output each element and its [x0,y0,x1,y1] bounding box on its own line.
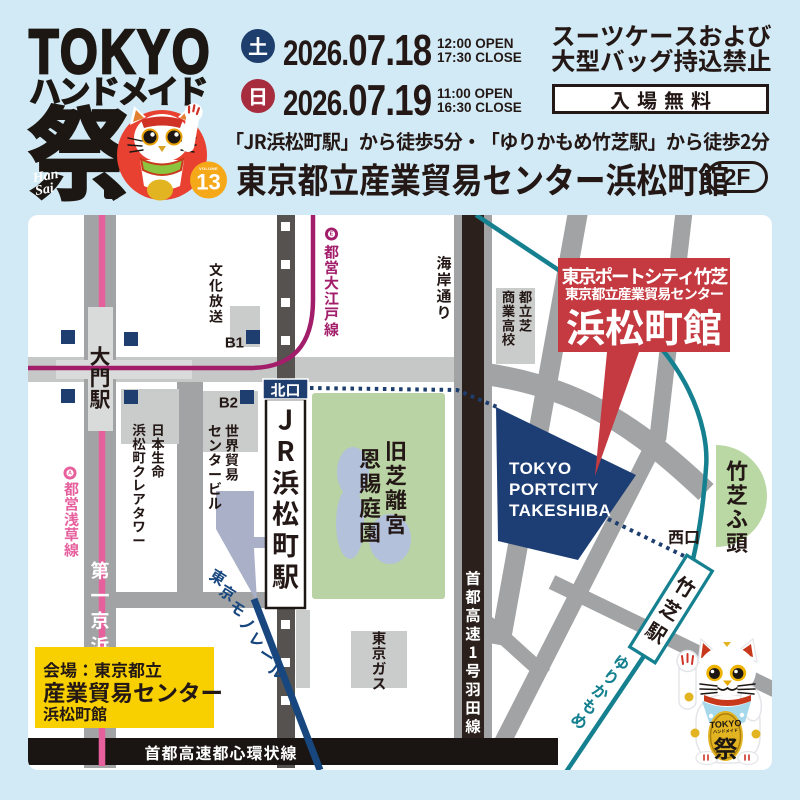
svg-text:命: 命 [151,460,165,480]
svg-text:校: 校 [502,329,516,349]
svg-text:浜松町館: 浜松町館 [566,298,722,354]
svg-text:送: 送 [209,307,223,327]
svg-text:E: E [330,232,334,238]
svg-text:13: 13 [196,170,220,195]
svg-text:B1: B1 [225,335,244,352]
svg-text:頭: 頭 [726,526,748,558]
svg-text:線: 線 [465,715,481,737]
svg-text:易: 易 [225,465,239,485]
svg-text:園: 園 [359,516,381,548]
svg-text:TOKYO: TOKYO [509,459,572,478]
svg-text:り: り [436,302,451,323]
svg-text:浜松町館: 浜松町館 [43,701,107,725]
svg-text:芝: 芝 [519,314,533,334]
svg-text:一: 一 [90,582,109,609]
svg-text:線: 線 [324,319,339,340]
svg-text:ス: ス [372,673,387,694]
svg-text:B2: B2 [219,395,238,412]
svg-text:宮: 宮 [385,508,407,540]
svg-text:A: A [68,471,72,477]
svg-text:西口: 西口 [668,524,700,548]
svg-text:線: 線 [64,539,79,560]
svg-text:駅: 駅 [90,384,111,414]
svg-text:首都高速都心環状線: 首都高速都心環状線 [144,740,297,764]
svg-text:ル: ル [208,494,222,514]
svg-text:駅: 駅 [272,556,299,595]
svg-text:ー: ー [132,529,146,549]
svg-text:PORTCITY: PORTCITY [509,480,599,499]
svg-text:第: 第 [90,557,109,584]
svg-text:京: 京 [90,607,109,634]
svg-text:北口: 北口 [270,380,300,401]
svg-text:TAKESHIBA: TAKESHIBA [509,501,611,520]
svg-text:祭: 祭 [714,730,738,765]
